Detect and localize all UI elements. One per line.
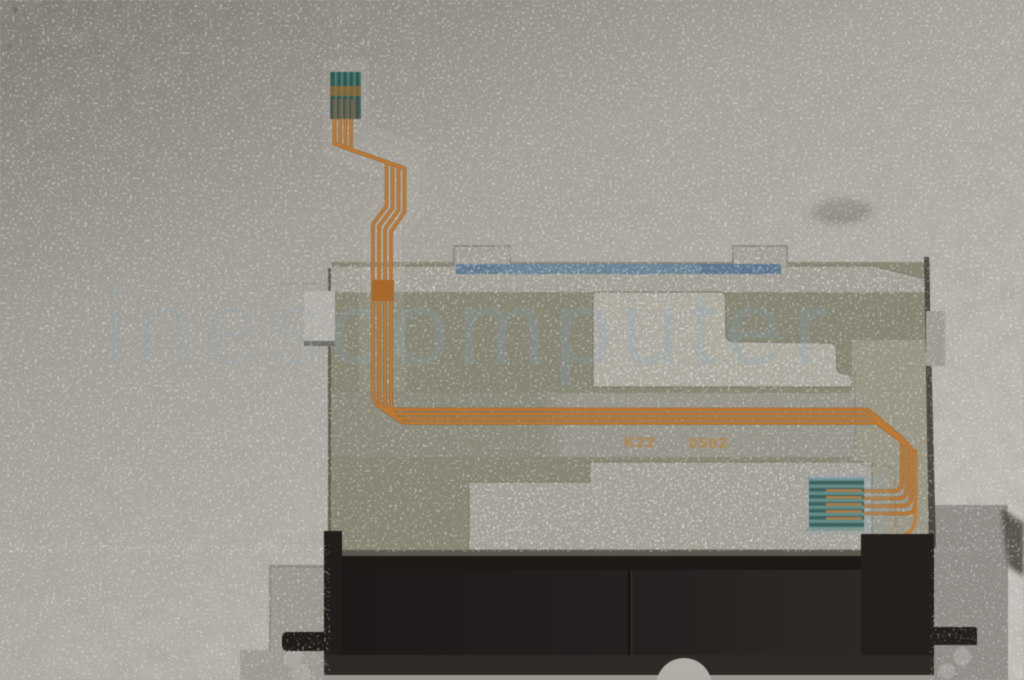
svg-text:K22: K22 bbox=[624, 434, 656, 451]
svg-text:0502: 0502 bbox=[689, 435, 728, 452]
